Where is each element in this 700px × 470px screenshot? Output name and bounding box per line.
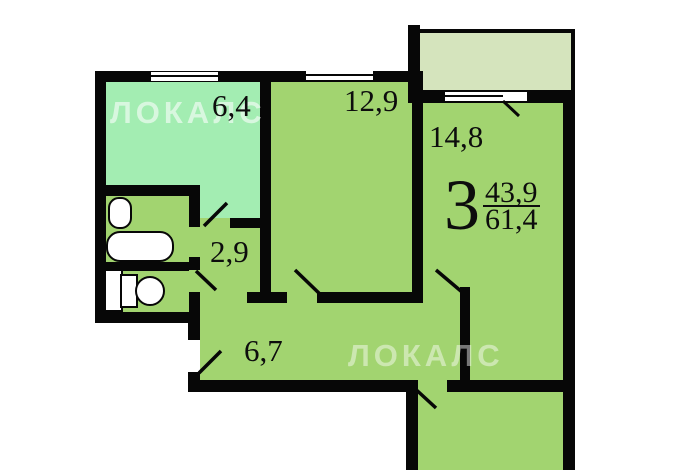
total-area-value: 61,4	[483, 207, 540, 231]
area-fraction: 43,9 61,4	[483, 181, 540, 231]
door-swing-icon-wc	[196, 271, 216, 290]
door-swing-icon-bottom-room	[411, 385, 436, 408]
watermark-bottom-right: ЛОКАЛС	[348, 340, 504, 371]
door-swing-icon-entrance	[199, 351, 221, 373]
label-room-right-area: 14,8	[429, 121, 483, 152]
label-hallway-area: 2,9	[210, 236, 249, 267]
door-swings-layer	[0, 0, 700, 470]
door-swing-icon-room129	[295, 270, 323, 297]
apartment-summary: 3 43,9 61,4	[444, 181, 540, 231]
label-kitchen-area: 6,4	[212, 90, 251, 121]
rooms-count: 3	[444, 181, 480, 230]
label-corridor-area: 6,7	[244, 335, 283, 366]
door-swing-icon-kitchen	[204, 203, 227, 226]
door-swing-icon-balcony	[503, 101, 519, 116]
floor-plan: ЛОКАЛС ЛОКАЛС 6,4 12,9 14,8 2,9 6,7 3 43…	[0, 0, 700, 470]
label-room-top-middle-area: 12,9	[344, 85, 398, 116]
door-swing-icon-room148	[436, 270, 462, 292]
